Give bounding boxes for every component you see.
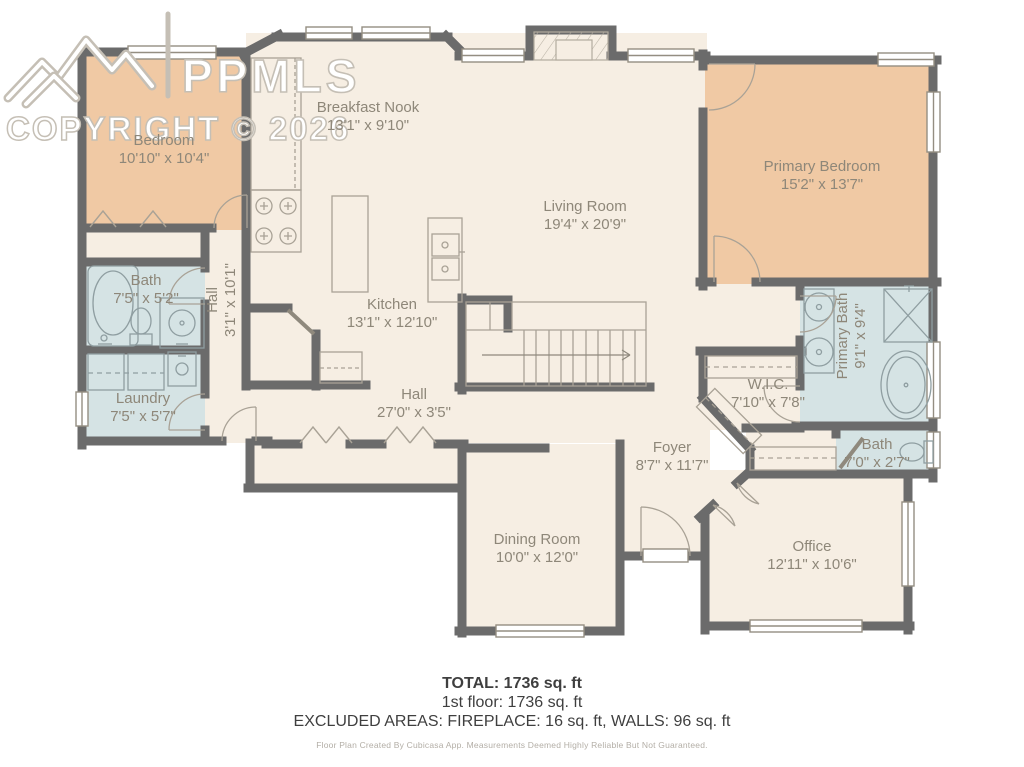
floor-fills — [82, 33, 937, 633]
total-area: TOTAL: 1736 sq. ft — [0, 674, 1024, 693]
floor-plan-page: PPMLS COPYRIGHT © 2026 Bedroom 10'10" x … — [0, 0, 1024, 767]
area-summary: TOTAL: 1736 sq. ft 1st floor: 1736 sq. f… — [0, 674, 1024, 750]
fireplace-icon — [530, 30, 612, 60]
disclaimer-text: Floor Plan Created By Cubicasa App. Meas… — [0, 740, 1024, 750]
excluded-areas: EXCLUDED AREAS: FIREPLACE: 16 sq. ft, WA… — [0, 712, 1024, 731]
floor-plan-drawing — [0, 0, 1024, 767]
first-floor-area: 1st floor: 1736 sq. ft — [0, 693, 1024, 712]
